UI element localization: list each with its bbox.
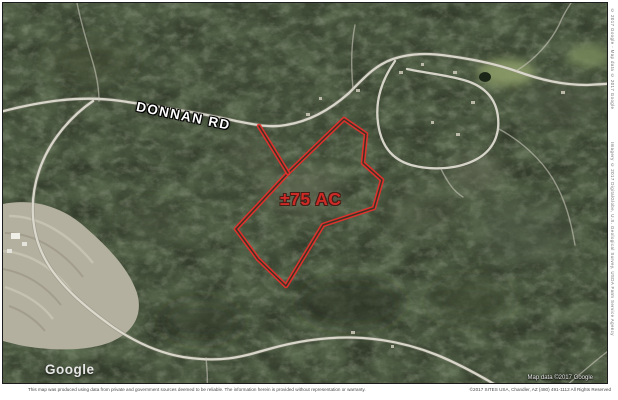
farm-building — [7, 249, 12, 253]
farm-building — [11, 233, 20, 239]
google-logo-watermark: Google — [45, 362, 95, 377]
map-data-credit: Map data ©2017 Google — [528, 375, 593, 381]
pond — [479, 72, 491, 82]
map-disclaimer-text: This map was produced using data from pr… — [28, 387, 366, 392]
parcel-acreage-label: ±75 AC — [280, 189, 342, 210]
map-attribution-text: ©2017 SITES USA, Chandler, AZ (480) 491-… — [470, 387, 611, 392]
satellite-map: DONNAN RD ±75 AC Google Map data ©2017 G… — [2, 2, 608, 384]
farm-building — [22, 242, 27, 246]
map-export-page: DONNAN RD ±75 AC Google Map data ©2017 G… — [0, 0, 618, 400]
vertical-credit-top: © 2017 Google - Map data © 2017 Google — [610, 8, 615, 109]
vertical-credit-middle: Imagery © 2017 DigitalGlobe, U.S. Geolog… — [610, 142, 615, 336]
